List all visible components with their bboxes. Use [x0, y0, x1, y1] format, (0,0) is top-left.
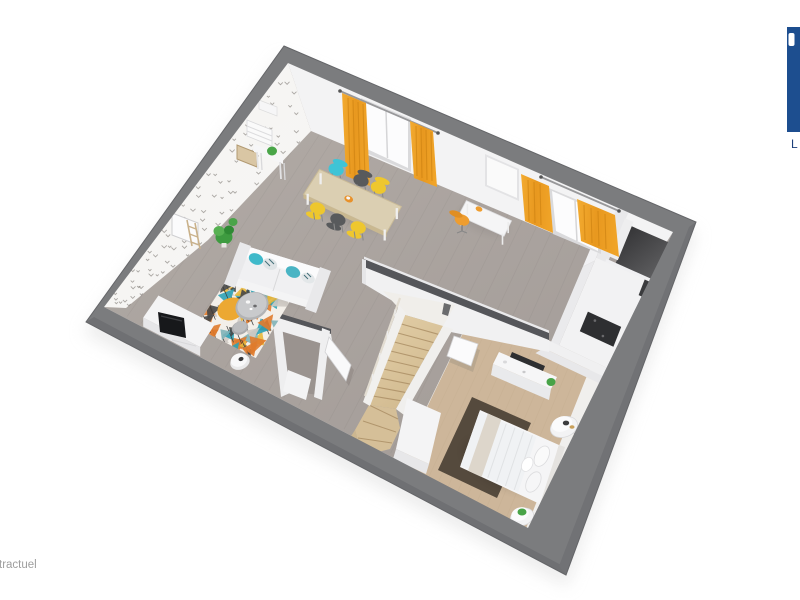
svg-text:tractuel: tractuel: [0, 559, 37, 571]
svg-text:L: L: [791, 137, 798, 151]
